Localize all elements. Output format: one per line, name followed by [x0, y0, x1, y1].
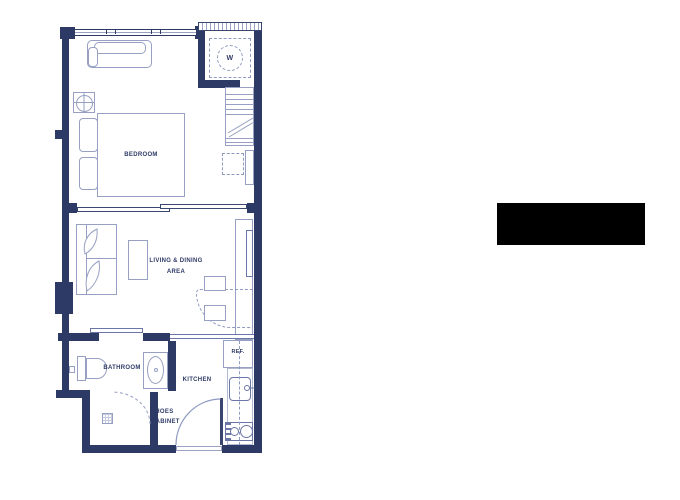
- sliding-partition-panel: [77, 207, 170, 212]
- wall-segment: [254, 26, 262, 453]
- wall-segment: [58, 333, 99, 341]
- wall-segment: [62, 30, 69, 398]
- wall-stub: [247, 203, 262, 213]
- kitchen-label: KITCHEN: [177, 377, 217, 383]
- shoes-cabinet-label-line2: CABINET: [151, 419, 185, 425]
- wall-segment: [168, 341, 176, 391]
- tv: [246, 230, 253, 277]
- window-tick: [106, 30, 116, 34]
- redaction-box: [497, 203, 645, 245]
- dressing-desk: [245, 150, 254, 185]
- washer-label: W: [222, 55, 238, 62]
- daybed-back: [94, 42, 146, 54]
- wall-segment: [198, 31, 205, 85]
- burner: [230, 427, 239, 436]
- wall-segment: [222, 445, 262, 453]
- stool: [222, 153, 244, 175]
- window-band: [75, 29, 196, 36]
- sliding-partition-panel: [160, 204, 247, 209]
- fridge-label: REF.: [223, 350, 253, 356]
- sofa: [76, 224, 117, 295]
- pillow: [79, 118, 98, 152]
- sofa-back-line: [86, 224, 87, 295]
- kitchen-divider: [170, 334, 254, 339]
- living-label-line2: AREA: [126, 269, 226, 275]
- shower-drain-icon: [102, 413, 113, 424]
- wardrobe-shelves: [226, 135, 253, 144]
- bathroom-sliding-door: [90, 328, 143, 333]
- faucet-icon: [244, 385, 250, 391]
- wall-stub: [62, 203, 77, 213]
- bathroom-label: BATHROOM: [98, 365, 146, 371]
- shower-door-swing: [112, 392, 150, 424]
- shoes-cabinet-label-line1: SHOES: [151, 409, 185, 415]
- wall-segment: [82, 445, 176, 453]
- entry-door-leaf: [220, 398, 223, 445]
- sofa-cushion-divider: [86, 258, 117, 259]
- toilet-tank: [77, 356, 86, 381]
- basin-drain-icon: [154, 368, 158, 372]
- wall-segment: [82, 390, 90, 447]
- ceiling-fan-circle: [76, 95, 93, 112]
- toilet-button: [69, 366, 75, 373]
- dining-chair: [204, 305, 226, 321]
- bedroom-label: BEDROOM: [101, 152, 181, 158]
- daybed-arm: [88, 47, 98, 67]
- overhead-cabinet-line: [239, 341, 240, 445]
- dining-chair: [204, 276, 226, 291]
- floorplan-canvas: W BEDROOM LIVING & DINING AREA BATHROOM …: [0, 0, 680, 500]
- wardrobe-shelves: [226, 90, 253, 117]
- wall-segment: [143, 333, 170, 341]
- burner: [240, 425, 253, 438]
- window-mullion-line: [75, 32, 196, 33]
- wall-column: [55, 130, 69, 139]
- pillow: [79, 157, 98, 190]
- living-label-line1: LIVING & DINING: [126, 258, 226, 264]
- ac-ledge: [198, 22, 262, 31]
- wall-column: [55, 282, 73, 314]
- window-tick: [151, 30, 161, 34]
- entry-sill: [176, 446, 222, 451]
